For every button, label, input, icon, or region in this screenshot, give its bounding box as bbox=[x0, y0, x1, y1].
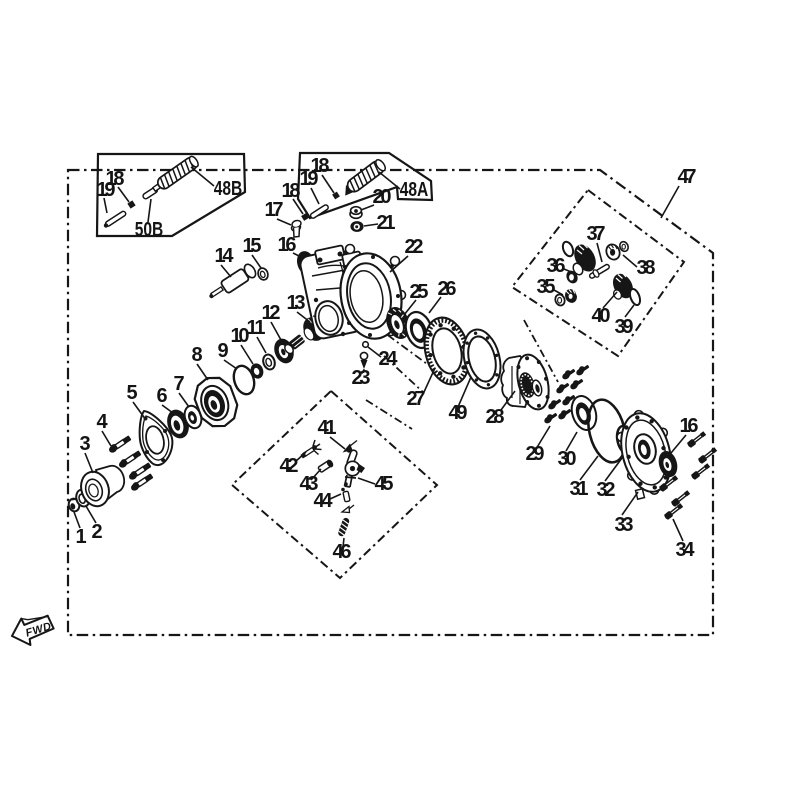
svg-text:47: 47 bbox=[678, 166, 697, 188]
svg-text:40: 40 bbox=[592, 305, 611, 327]
svg-text:44: 44 bbox=[314, 490, 334, 512]
svg-text:41: 41 bbox=[318, 417, 337, 439]
svg-text:5: 5 bbox=[126, 382, 137, 404]
svg-text:12: 12 bbox=[262, 302, 281, 324]
svg-text:8: 8 bbox=[191, 344, 202, 366]
svg-text:38: 38 bbox=[637, 257, 656, 279]
svg-text:2: 2 bbox=[91, 521, 102, 543]
svg-text:24: 24 bbox=[379, 348, 399, 370]
svg-text:18: 18 bbox=[311, 155, 330, 177]
svg-text:36: 36 bbox=[547, 255, 566, 277]
svg-text:27: 27 bbox=[407, 388, 426, 410]
svg-text:45: 45 bbox=[375, 473, 394, 495]
svg-text:16: 16 bbox=[680, 415, 699, 437]
svg-text:13: 13 bbox=[287, 292, 306, 314]
svg-text:50B: 50B bbox=[135, 218, 164, 240]
svg-text:21: 21 bbox=[377, 212, 396, 234]
svg-text:28: 28 bbox=[486, 406, 505, 428]
svg-text:23: 23 bbox=[352, 367, 371, 389]
svg-text:31: 31 bbox=[570, 478, 589, 500]
svg-text:17: 17 bbox=[265, 199, 284, 221]
svg-text:22: 22 bbox=[405, 236, 424, 258]
svg-text:16: 16 bbox=[278, 234, 297, 256]
svg-text:26: 26 bbox=[438, 278, 457, 300]
svg-text:46: 46 bbox=[333, 541, 352, 563]
svg-text:33: 33 bbox=[615, 514, 634, 536]
svg-text:1: 1 bbox=[75, 526, 86, 548]
svg-text:3: 3 bbox=[79, 433, 90, 455]
svg-text:18: 18 bbox=[106, 168, 125, 190]
svg-text:6: 6 bbox=[156, 385, 167, 407]
svg-text:9: 9 bbox=[217, 340, 228, 362]
svg-text:48A: 48A bbox=[400, 178, 429, 200]
svg-text:49: 49 bbox=[449, 402, 468, 424]
svg-text:4: 4 bbox=[96, 411, 108, 433]
svg-text:25: 25 bbox=[410, 281, 429, 303]
svg-text:42: 42 bbox=[280, 455, 299, 477]
svg-text:7: 7 bbox=[173, 373, 184, 395]
svg-text:34: 34 bbox=[676, 539, 696, 561]
svg-text:30: 30 bbox=[558, 448, 577, 470]
svg-text:35: 35 bbox=[537, 276, 556, 298]
svg-text:37: 37 bbox=[587, 223, 606, 245]
svg-text:48B: 48B bbox=[214, 177, 243, 199]
svg-text:18: 18 bbox=[282, 180, 301, 202]
svg-text:14: 14 bbox=[215, 245, 235, 267]
svg-text:29: 29 bbox=[526, 443, 545, 465]
svg-text:20: 20 bbox=[373, 186, 392, 208]
svg-text:32: 32 bbox=[597, 479, 616, 501]
svg-text:15: 15 bbox=[243, 235, 262, 257]
svg-text:39: 39 bbox=[615, 316, 634, 338]
